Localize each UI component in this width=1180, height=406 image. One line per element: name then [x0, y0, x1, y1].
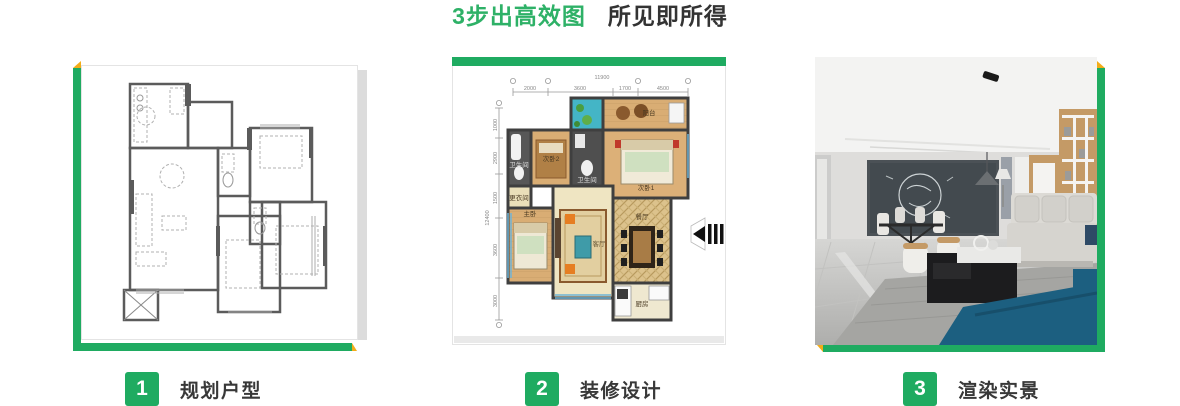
dim-left-4: 3600	[493, 244, 499, 256]
room-label-closet: 更衣间	[509, 193, 529, 202]
step-3-label: 渲染实景	[958, 376, 1040, 403]
step-3-badge: 3	[903, 372, 937, 406]
step-2-badge: 2	[525, 372, 559, 406]
dim-left-1: 1000	[493, 119, 499, 131]
panel1-yellow-corner-bottom	[352, 343, 357, 351]
panel3-card-render-photo	[815, 57, 1097, 345]
dim-top-3: 1700	[619, 86, 631, 92]
interior-render-image	[815, 57, 1097, 345]
cad-floorplan-image	[82, 66, 357, 339]
step-2-label: 装修设计	[580, 376, 662, 403]
step-1: 1 规划户型	[125, 372, 262, 406]
dim-left-2: 2900	[493, 152, 499, 164]
room-label-bedroom2: 次卧2	[543, 154, 560, 163]
panel1-card-floorplan-cad	[81, 65, 358, 340]
room-label-bath1: 卫生间	[509, 160, 529, 169]
step-1-label: 规划户型	[180, 376, 262, 403]
panel1-green-left-bar	[73, 68, 81, 351]
page-title-highlight: 3步出高效图	[452, 3, 586, 29]
room-label-kitchen: 厨房	[636, 299, 649, 308]
page-title-rest: 所见即所得	[608, 3, 728, 29]
panel1-card-shadow	[358, 70, 367, 340]
page-title: 3步出高效图所见即所得	[0, 0, 1180, 31]
panel1-green-bottom-bar	[73, 343, 352, 351]
dim-left-3: 1500	[493, 192, 499, 204]
page: 3步出高效图所见即所得	[0, 0, 1180, 406]
panel2-gray-bottom-strip	[454, 336, 724, 343]
step-3: 3 渲染实景	[903, 372, 1040, 406]
panel3-green-bottom-bar	[823, 345, 1105, 352]
room-label-living: 客厅	[593, 239, 607, 248]
dim-left-total: 12400	[485, 210, 491, 225]
dim-top-2: 3600	[574, 86, 586, 92]
room-label-dining: 餐厅	[636, 212, 650, 221]
panel3-green-right-bar	[1097, 68, 1105, 352]
room-label-balcony: 阳台	[643, 108, 656, 117]
dim-top-total: 11900	[595, 75, 610, 81]
dim-left-5: 3000	[493, 295, 499, 307]
room-label-master: 主卧	[524, 209, 538, 218]
room-label-bedroom1: 次卧1	[638, 183, 655, 192]
panel3-yellow-corner-top	[1097, 61, 1105, 68]
panel1-yellow-corner-top	[73, 61, 81, 68]
panel2-card-floorplan-design: 11900 2000 3600 1700 4500 1000 2900 1500…	[452, 57, 726, 345]
panel2-green-top-bar	[452, 57, 726, 66]
entrance-arrow-icon	[691, 218, 724, 250]
step-2: 2 装修设计	[525, 372, 662, 406]
step-1-badge: 1	[125, 372, 159, 406]
room-label-bath2: 卫生间	[577, 175, 597, 184]
dim-top-4: 4500	[657, 86, 669, 92]
design-floorplan-image: 11900 2000 3600 1700 4500 1000 2900 1500…	[453, 68, 725, 338]
dim-top-1: 2000	[524, 86, 536, 92]
dimension-lines-left	[495, 100, 503, 327]
